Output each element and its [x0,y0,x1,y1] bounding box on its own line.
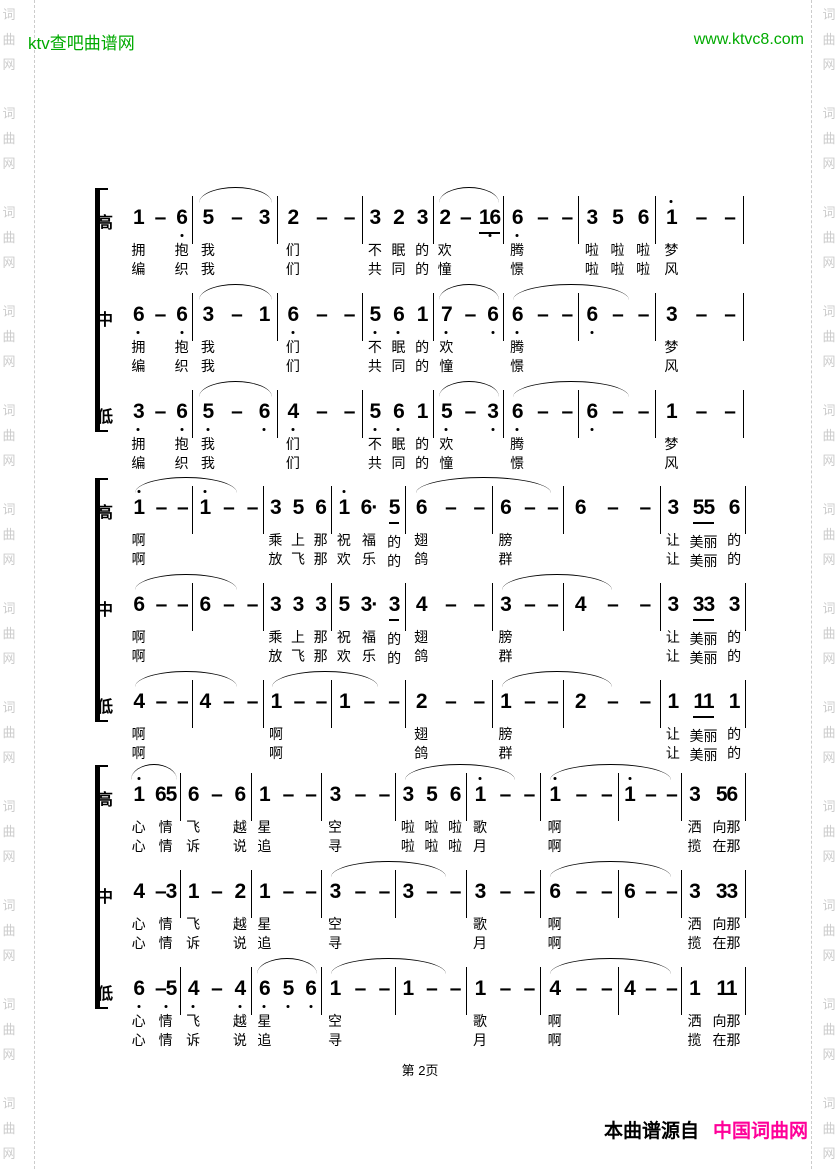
lyric-line-2: 啊 [132,744,146,763]
note-column: 5啦啦 [424,781,438,856]
note-column: – [155,688,167,763]
lyric-line-2: 同 [391,357,405,376]
lyric-line-1: 腾 [510,241,524,260]
note-token: 4 [549,975,560,1003]
note-column: 2欢憧 [438,204,452,281]
note-column: 4们们 [286,398,300,473]
lyric-line-1: 梦 [664,241,678,260]
system-bracket [95,765,108,1009]
lyric-line-1: 梦 [664,435,678,454]
note-column: – [222,688,234,763]
lyric-line-2: 美丽 [689,552,717,571]
note-column: – [176,494,188,569]
note-column: – [378,975,390,1050]
note-token: 1 [729,688,740,716]
lyric-line-1: 们 [286,338,300,357]
lyric-line-2: 月 [473,1031,487,1050]
note-token: 5 [389,494,400,524]
note-token: 6 [393,398,404,426]
lyric-line-1: 空 [328,915,342,934]
measure: 3让让55美丽美丽6的的 [661,494,746,571]
measure: 1空寻–– [322,975,396,1050]
note-token: – [696,301,707,329]
measure: 6–– [564,494,661,569]
note-token: – [156,494,167,522]
note-token: – [639,688,650,716]
note-column: – [639,494,651,569]
measure: 1–– [396,975,467,1050]
lyric-line-2: 欢 [337,647,351,666]
note-token: – [696,398,707,426]
lyric-line-1: 飞 [186,915,200,934]
note-column: 1歌月 [473,781,487,856]
note-column: 7欢憧 [439,301,453,376]
note-token: 5 [339,591,350,619]
lyric-line-2: 追 [257,934,271,953]
note-token: 1 [188,878,199,906]
lyric-line-1: 祝 [337,531,351,550]
note-column: 1 [338,688,350,763]
lyric-line-1: 抱 [175,241,189,260]
lyric-line-2: 说 [233,934,247,953]
note-token: – [445,591,456,619]
lyric-line-1: 的 [387,630,401,649]
system-bracket [95,188,108,432]
lyric-line-2: 的 [727,744,741,763]
note-token: – [177,494,188,522]
lyric-line-2: 欢 [337,550,351,569]
note-token: – [500,781,511,809]
lyric-line-1: 眠 [391,241,405,260]
note-column: 65情情 [155,781,176,856]
measure: 6腾憬–– [504,204,579,279]
note-token: – [607,688,618,716]
note-token: 5 [202,398,213,426]
note-token: 6 [234,781,245,809]
measure: 6星追56 [252,975,322,1050]
lyric-line-1: 那 [314,531,328,550]
score-system: 高1心心65情情6飞诉–6越说1星追––3空寻––3啦啦5啦啦6啦啦1歌月––1… [97,781,746,1072]
note-token: – [177,688,188,716]
note-token: –5 [155,975,176,1003]
note-column: 33美丽美丽 [689,591,717,668]
note-token: 6 [287,301,298,329]
note-column: 1飞诉 [186,878,200,953]
note-column: – [293,688,305,763]
note-token: – [283,878,294,906]
note-token: – [561,398,572,426]
lyric-line-2: 诉 [186,1031,200,1050]
note-token: – [524,591,535,619]
note-column: 1星追 [257,781,271,856]
note-token: – [379,975,390,1003]
lyric-line-2: 憧 [439,454,453,473]
note-column: – [282,781,294,856]
lyric-line-1: 翅 [414,531,428,550]
note-token: 2 [416,688,427,716]
lyric-line-2: 群 [499,744,513,763]
lyric-line-1: 让 [666,628,680,647]
note-token: 6 [512,301,523,329]
measure: 4飞诉–4越说 [181,975,252,1050]
note-column: –5情情 [155,975,176,1050]
measure: 4啊啊–– [127,688,193,763]
note-token: 1 [259,781,270,809]
lyric-line-2: 诉 [186,934,200,953]
note-column: 6那那 [314,494,328,569]
note-column: – [637,301,649,376]
note-column: – [575,975,587,1050]
note-token: 6 [133,591,144,619]
lyric-line-1: 啦 [585,241,599,260]
measure: 6飞诉–6越说 [181,781,252,856]
note-column: – [222,494,234,569]
note-token: – [576,878,587,906]
note-token: 1 [259,878,270,906]
note-token: 65 [155,781,176,809]
note-column: 3歌月 [473,878,487,953]
note-column: – [305,781,317,856]
note-token: 33 [716,878,737,906]
note-token: – [155,398,166,426]
note-column: – [222,591,234,666]
measure: 1–– [619,781,682,856]
note-column: 1啊啊 [132,494,146,569]
note-column: – [575,781,587,856]
note-column: – [600,975,612,1050]
note-column: 6啦啦 [448,781,462,856]
measure: 2–– [564,688,661,763]
lyric-line-1: 飞 [186,1012,200,1031]
note-token: 3· [361,591,378,619]
lyric-line-1: 们 [286,435,300,454]
lyric-line-1: 欢 [439,338,453,357]
note-token: 1 [402,975,413,1003]
note-column: 1心心 [132,781,146,856]
source-credit-prefix: 本曲谱源自 [604,1121,699,1142]
lyric-line-1: 的 [415,435,429,454]
note-column: 11向那在那 [713,975,741,1050]
measure: 6们们–– [278,301,363,376]
lyric-line-1: 啊 [132,725,146,744]
measure: 3空寻–– [322,781,396,856]
note-token: – [211,781,222,809]
lyric-line-1: 啊 [548,818,562,837]
lyric-line-2: 放 [268,647,282,666]
note-column: 6眠同 [391,398,405,473]
note-column: – [282,878,294,953]
note-token: – [450,975,461,1003]
note-token: 1 [199,494,210,522]
lyric-line-1: 啊 [269,725,283,744]
note-token: – [344,398,355,426]
source-site-link[interactable]: 中国词曲网 [713,1121,808,1142]
note-column: 4啊啊 [132,688,146,763]
measure: 1让让11美丽美丽1的的 [661,688,746,765]
lyric-line-2: 寻 [328,837,342,856]
note-column: – [645,781,657,856]
note-column: 3我我 [201,301,215,376]
lyric-line-1: 腾 [510,338,524,357]
note-column: – [499,878,511,953]
note-column: 6心心 [132,975,146,1050]
measure: 1心心65情情 [127,781,181,856]
lyric-line-2: 让 [666,647,680,666]
note-column: – [499,781,511,856]
lyric-line-2: 同 [391,454,405,473]
lyric-line-2: 美丽 [689,649,717,668]
note-column: 6 [586,398,598,473]
lyric-line-2: 编 [131,357,145,376]
voice-row: 高1拥编–6抱织5我我–32们们––3不共2眠同3的的2欢憧–166腾憬––3啦… [97,204,744,301]
note-token: – [500,878,511,906]
lyric-line-2: 的 [727,647,741,666]
note-token: – [537,204,548,232]
note-column: – [524,494,536,569]
note-token: 6 [315,494,326,522]
note-token: – [465,398,476,426]
note-token: –3 [155,878,176,906]
note-token: 3 [133,398,144,426]
note-column: – [499,975,511,1050]
note-token: 4 [287,398,298,426]
note-column: – [155,591,167,666]
lyric-line-1: 啦 [448,818,462,837]
note-token: – [445,494,456,522]
lyric-line-1: 啦 [424,818,438,837]
note-token: 3 [729,591,740,619]
note-token: 3 [417,204,428,232]
note-token: 1 [271,688,282,716]
note-column: – [246,591,258,666]
lyric-line-2: 心 [132,837,146,856]
note-token: 1 [624,781,635,809]
note-column: – [575,878,587,953]
measure: 6–– [619,878,682,953]
note-column: 1歌月 [473,975,487,1050]
note-column: 1梦风 [664,398,678,473]
note-column: 4飞诉 [186,975,200,1050]
note-token: – [524,781,535,809]
note-column: – [154,204,166,279]
lyric-line-1: 欢 [438,241,452,260]
note-column: 1的的 [727,688,741,765]
lyric-line-2: 风 [664,260,678,279]
note-column: 6腾憬 [510,398,524,473]
lyric-line-2: 啊 [132,647,146,666]
lyric-line-2: 风 [664,357,678,376]
note-column: 6 [586,301,598,376]
lyric-line-2: 追 [257,837,271,856]
lyric-line-2: 情 [159,837,173,856]
lyric-line-2: 的 [727,550,741,569]
note-token: 6 [176,204,187,232]
lyric-line-2: 同 [391,260,405,279]
note-token: 4 [199,688,210,716]
measure: 2翅鸽–– [406,688,493,763]
note-column: 6 [574,494,586,569]
note-token: 6 [133,975,144,1003]
note-token: – [344,204,355,232]
lyric-line-2: 们 [286,260,300,279]
note-token: 1 [666,398,677,426]
lyric-line-1: 情 [159,915,173,934]
note-column: 3·福乐 [361,591,378,668]
lyric-line-2: 美丽 [689,746,717,765]
lyric-line-2: 的 [387,649,401,668]
note-column: 6 [199,591,211,666]
note-token: – [561,204,572,232]
note-column: – [666,878,678,953]
note-token: 6 [176,301,187,329]
note-token: – [639,494,650,522]
note-token: 6 [549,878,560,906]
note-token: – [607,494,618,522]
lyric-line-2: 风 [664,454,678,473]
note-column: – [425,975,437,1050]
measure: 1飞诉–2越说 [181,878,252,953]
note-column: 3啦啦 [585,204,599,279]
lyric-line-1: 啊 [548,1012,562,1031]
note-column: 5上飞 [291,494,305,569]
measure: 3乘放3上飞3那那 [264,591,332,666]
note-column: – [536,204,548,279]
note-column: 1 [258,301,270,376]
note-column: 3啦啦 [401,781,415,856]
note-column: 6星追 [257,975,271,1050]
note-token: 6 [512,398,523,426]
lyric-line-2: 们 [286,357,300,376]
note-column: 1空寻 [328,975,342,1050]
lyric-line-2: 我 [201,454,215,473]
note-column: – [176,688,188,763]
measure: 5我我–3 [193,204,278,279]
note-column: – [154,301,166,376]
note-column: 3梦风 [664,301,678,376]
note-token: 3 [270,494,281,522]
note-column: – [210,781,222,856]
lyric-line-2: 追 [257,1031,271,1050]
lyric-line-1: 心 [132,1012,146,1031]
measure: 4们们–– [278,398,363,473]
note-column: – [305,878,317,953]
lyric-line-1: 乘 [268,628,282,647]
note-token: 1 [549,781,560,809]
lyric-line-2: 啊 [132,550,146,569]
lyric-line-1: 翅 [414,628,428,647]
note-column: – [230,301,242,376]
note-token: 1 [133,781,144,809]
note-token: 5 [612,204,623,232]
measure: 3洒揽33向那在那 [682,878,746,953]
lyric-line-1: 心 [132,915,146,934]
lyric-line-1: 祝 [337,628,351,647]
note-token: – [576,975,587,1003]
note-column: – [695,398,707,473]
note-column: 6膀群 [499,494,513,569]
note-token: 6 [729,494,740,522]
note-column: 6啦啦 [636,204,650,279]
measure: 3啦啦5啦啦6啦啦 [396,781,467,856]
lyric-line-1: 乘 [268,531,282,550]
note-column: – [449,975,461,1050]
note-token: 5 [369,301,380,329]
note-token: 3 [389,591,400,621]
note-token: – [645,781,656,809]
note-column: 1 [199,494,211,569]
lyric-line-2: 情 [159,1031,173,1050]
note-column: 6 [624,878,636,953]
lyric-line-1: 心 [132,818,146,837]
note-column: – [363,688,375,763]
measure: 6–– [193,591,264,666]
note-column: 3膀群 [499,591,513,666]
note-token: 1 [689,975,700,1003]
note-column: 3那那 [314,591,328,666]
note-column: 5的的 [387,494,401,571]
note-token: – [638,398,649,426]
note-column: 5不共 [368,398,382,473]
measure: 6啊啊–– [541,878,619,953]
note-column: 4心心 [132,878,146,953]
note-column: – [524,688,536,763]
note-token: 6· [361,494,378,522]
note-token: – [601,975,612,1003]
note-token: 6 [450,781,461,809]
note-token: – [612,398,623,426]
measure: 1啊啊–– [264,688,332,763]
note-token: – [364,688,375,716]
lyric-line-1: 洒 [688,915,702,934]
lyric-line-2: 情 [159,934,173,953]
note-token: – [231,301,242,329]
note-column: – [611,301,623,376]
note-token: – [547,688,558,716]
note-token: – [612,301,623,329]
note-column: 5我我 [201,398,215,473]
note-column: – [639,688,651,763]
note-token: 3 [402,878,413,906]
note-column: 3 [402,878,414,953]
note-token: – [355,975,366,1003]
lyric-line-2: 憬 [510,260,524,279]
note-token: – [601,878,612,906]
lyric-line-2: 说 [233,1031,247,1050]
note-column: – [524,591,536,666]
note-column: – [378,781,390,856]
lyric-line-1: 拥 [131,241,145,260]
lyric-line-1: 星 [257,818,271,837]
note-token: 6 [586,301,597,329]
lyric-line-2: 我 [201,357,215,376]
note-token: – [666,781,677,809]
note-token: 1 [339,494,350,522]
note-column: 1 [624,781,636,856]
measure: 6腾憬–– [504,301,579,376]
lyric-line-1: 欢 [439,435,453,454]
note-column: 4啊啊 [548,975,562,1050]
note-column: 1 [402,975,414,1050]
note-column: 6腾憬 [510,301,524,376]
note-column: – [523,781,535,856]
measure: 3我我–1 [193,301,278,376]
lyric-line-2: 啊 [548,1031,562,1050]
note-column: – [315,204,327,279]
note-column: 6们们 [286,301,300,376]
lyric-line-2: 编 [131,454,145,473]
note-token: – [355,781,366,809]
note-column: 3让让 [666,494,680,571]
